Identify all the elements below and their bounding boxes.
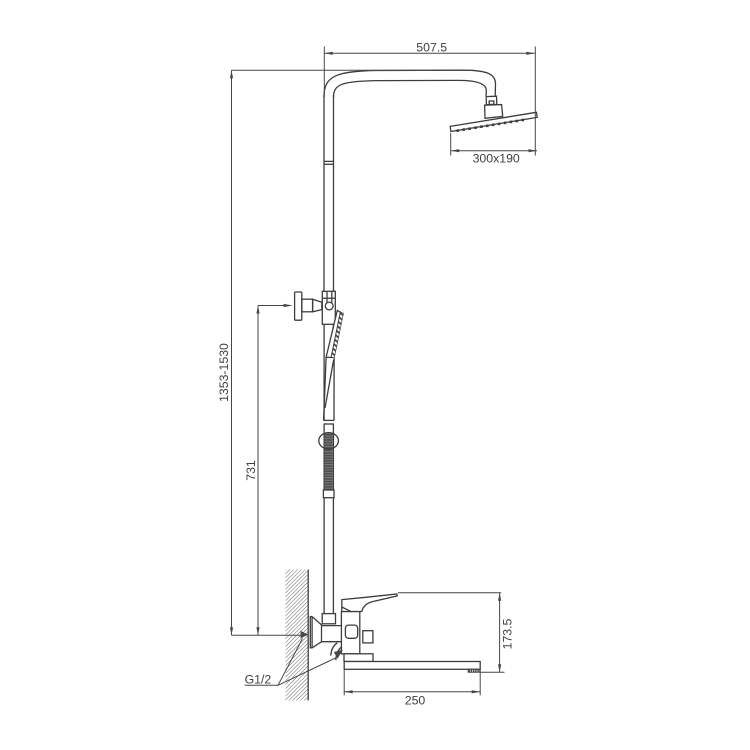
- svg-text:1353-1530: 1353-1530: [217, 343, 231, 402]
- svg-text:G1/2: G1/2: [245, 673, 272, 687]
- svg-text:250: 250: [405, 693, 426, 707]
- svg-text:173.5: 173.5: [501, 618, 515, 649]
- svg-text:731: 731: [244, 460, 258, 481]
- svg-text:300x190: 300x190: [473, 151, 520, 165]
- svg-text:507.5: 507.5: [416, 40, 447, 54]
